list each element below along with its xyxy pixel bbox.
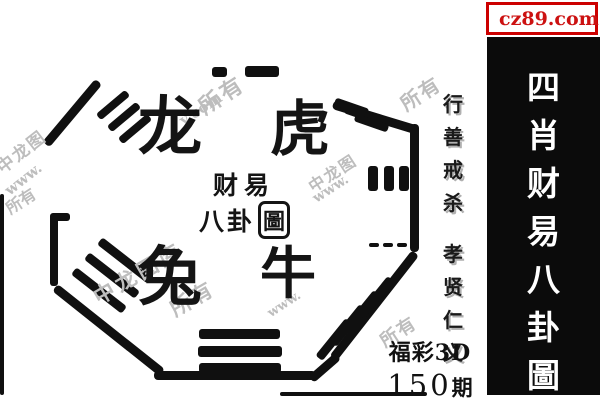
banner-title-char: 四 (527, 61, 560, 109)
banner-title-char: 易 (527, 205, 560, 253)
trigram-right-dash-icon (383, 243, 393, 247)
issue-number: 150 (387, 368, 451, 402)
motto-char: 仁 (443, 304, 463, 333)
lottery-bagua-chart: 中龙图 www. 所有 y.com 中龙图 www. 所有 中龙图库 所有 ww… (0, 0, 600, 415)
octagon-edge-top-left (43, 79, 103, 148)
center-seal-bagua-label: 八卦 (199, 202, 255, 238)
right-banner: 四 肖 财 易 八 卦 圖 (487, 37, 600, 395)
banner-title-char: 肖 (527, 109, 560, 157)
trigram-bottom-icon (199, 363, 281, 373)
game-name: 福彩3D (376, 335, 484, 367)
trigram-right-icon (368, 166, 378, 191)
trigram-right-dash-icon (369, 243, 379, 247)
trigram-top-icon (245, 66, 279, 77)
trigram-right-icon (384, 166, 394, 191)
left-border-line (0, 194, 4, 395)
seal-stamp-icon: 圖 (258, 201, 290, 239)
zodiac-ox: 牛 (260, 246, 316, 302)
octagon-edge-right (410, 124, 419, 252)
motto-char: 孝 (443, 238, 463, 267)
zodiac-rabbit: 兔 (138, 246, 202, 310)
center-seal-line1: 财易 (213, 166, 275, 202)
zodiac-dragon: 龙 (138, 96, 202, 160)
motto-char: 行 (443, 88, 463, 117)
trigram-right-icon (399, 166, 409, 191)
center-seal-line2: 八卦 圖 (199, 201, 290, 239)
motto-char: 善 (443, 121, 463, 150)
motto-char: 贤 (443, 271, 463, 300)
octagon-edge-left (50, 214, 58, 286)
trigram-right-dash-icon (397, 243, 407, 247)
banner-title: 四 肖 财 易 八 卦 圖 (487, 61, 600, 361)
trigram-bottom-icon (198, 346, 282, 357)
octagon-edge-left-stub (50, 213, 70, 221)
zodiac-tiger: 虎 (270, 100, 330, 160)
trigram-bottom-icon (199, 329, 280, 339)
site-badge[interactable]: cz89.com (486, 2, 598, 35)
issue-number-line: 150期 (376, 368, 484, 402)
motto-char: 戒 (443, 154, 463, 183)
banner-title-char: 卦 (527, 301, 560, 349)
site-badge-label: cz89.com (499, 8, 599, 30)
issue-suffix: 期 (452, 375, 473, 400)
banner-title-char: 圖 (527, 349, 560, 397)
banner-title-char: 财 (527, 157, 560, 205)
banner-title-char: 八 (527, 253, 560, 301)
motto-char: 杀 (443, 187, 463, 216)
motto-strip: 行 善 戒 杀 孝 贤 仁 义 (438, 88, 468, 366)
issue-underline (280, 392, 427, 396)
